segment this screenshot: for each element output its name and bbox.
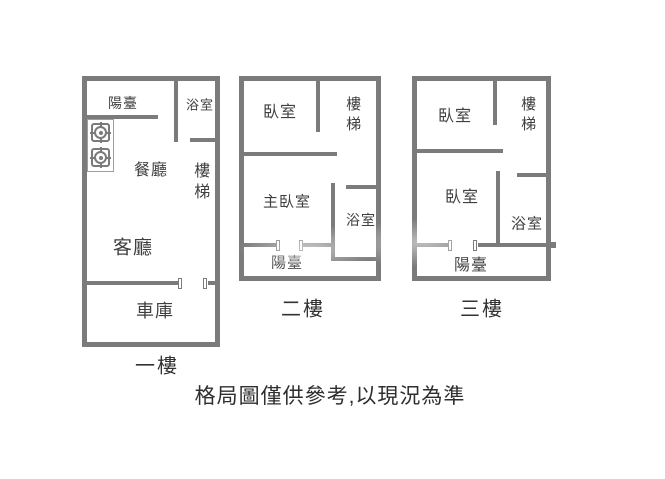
room-label-master-bedroom: 主臥室 — [263, 191, 311, 212]
floor3-title: 三樓 — [460, 293, 504, 322]
room-label-bathroom: 浴室 — [186, 95, 214, 114]
floor1-bathroom-divider-wall — [174, 81, 178, 142]
floor-plan-diagram: 陽臺 浴室 餐廳 樓梯 客廳 車庫 一樓 臥室 樓梯 主臥室 浴室 陽臺 二樓 … — [0, 0, 665, 479]
floor1-garage-wall — [87, 281, 178, 285]
floor2-bathroom-top-wall — [346, 185, 376, 189]
room-label-bedroom: 臥室 — [263, 98, 297, 122]
floor3-balcony-wall — [417, 243, 449, 247]
room-label-stairs: 樓梯 — [345, 95, 362, 135]
door-jamb — [448, 240, 452, 251]
room-label-bathroom: 浴室 — [511, 213, 543, 234]
room-label-balcony: 陽臺 — [454, 251, 488, 275]
wall-nub — [551, 242, 556, 248]
room-label-dining: 餐廳 — [134, 156, 168, 180]
door-jamb — [299, 240, 303, 251]
floor2-stairs-divider-wall — [316, 81, 320, 132]
room-label-bedroom: 臥室 — [445, 183, 479, 207]
disclaimer-text: 格局圖僅供參考,以現況為準 — [195, 380, 466, 410]
room-label-balcony: 陽臺 — [108, 93, 138, 113]
floor2-bathroom-bottom-wall — [335, 257, 376, 261]
floor1-title: 一樓 — [135, 350, 179, 379]
stove-burner-icon — [91, 148, 110, 167]
floor2-bedroom-wall — [244, 152, 337, 156]
door-jamb — [276, 240, 280, 251]
floor3-stairs-divider-wall — [493, 81, 497, 125]
floor3-bedroom-wall — [417, 149, 503, 153]
room-label-stairs: 樓梯 — [193, 161, 211, 203]
room-label-stairs: 樓梯 — [520, 95, 537, 135]
floor2-bathroom-side-wall — [331, 183, 335, 261]
floor3-bathroom-top-wall — [517, 173, 546, 177]
floor3-bathroom-side-wall — [496, 171, 500, 247]
room-label-garage: 車庫 — [136, 297, 174, 323]
floor1-bathroom-bottom-wall — [190, 138, 215, 142]
room-label-bedroom: 臥室 — [438, 102, 472, 126]
floor1-garage-wall — [208, 281, 215, 285]
floor3-balcony-wall — [478, 243, 546, 247]
stove-burner-icon — [91, 123, 110, 142]
floor2-title: 二樓 — [281, 293, 325, 322]
door-jamb — [473, 240, 477, 251]
floor2-balcony-wall — [244, 243, 277, 247]
room-label-living: 客廳 — [113, 233, 153, 260]
floor2-balcony-wall — [303, 243, 331, 247]
door-jamb — [178, 278, 182, 289]
room-label-bathroom: 浴室 — [346, 210, 376, 230]
room-label-balcony: 陽臺 — [271, 252, 303, 273]
door-jamb — [203, 278, 207, 289]
